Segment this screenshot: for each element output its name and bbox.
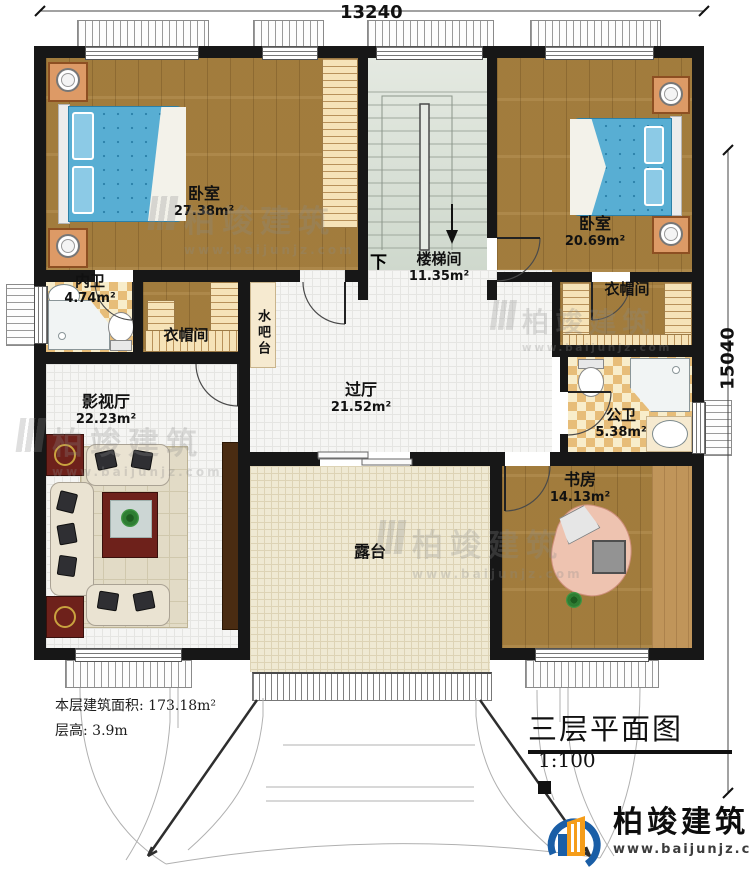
floor-info: 本层建筑面积: 173.18m² 层高: 3.9m xyxy=(55,694,216,743)
room-label-inner-bathroom: 内卫 4.74m² xyxy=(52,272,128,307)
room-label-study: 书房 14.13m² xyxy=(536,470,624,506)
room-label-cloakroom-right: 衣帽间 xyxy=(586,280,668,299)
stair-outline xyxy=(382,96,452,250)
brand-logo-name: 柏竣建筑 xyxy=(613,808,750,838)
room-label-hall: 过厅 21.52m² xyxy=(316,380,406,416)
stair-down-arrow xyxy=(446,204,458,244)
stair-down-label: 下 xyxy=(370,248,387,273)
brand-logo-url: www.baijunjz.com xyxy=(613,842,750,857)
terrace-sliding-door xyxy=(318,452,412,465)
room-label-bedroom-right: 卧室 20.69m² xyxy=(540,214,650,250)
canopy-node xyxy=(538,781,551,794)
floor-height-text: 层高: 3.9m xyxy=(55,719,216,744)
room-label-media-room: 影视厅 22.23m² xyxy=(56,392,156,428)
room-label-stairwell: 楼梯间 11.35m² xyxy=(402,250,476,285)
room-label-cloakroom-left: 衣帽间 xyxy=(140,326,232,345)
room-label-public-bathroom: 公卫 5.38m² xyxy=(584,406,658,441)
drawing-title: 三层平面图 xyxy=(528,712,683,746)
title-underline xyxy=(528,750,732,754)
dimension-right: 15040 xyxy=(718,327,739,391)
floor-area-text: 本层建筑面积: 173.18m² xyxy=(55,694,216,719)
floor-plan-canvas: 13240 15040 卧室 27.38m² 内卫 4.74m² 衣帽间 水吧台… xyxy=(0,0,750,883)
room-label-bedroom-left: 卧室 27.38m² xyxy=(146,184,262,220)
dimension-top: 13240 xyxy=(340,2,403,23)
stair-handrail xyxy=(420,104,429,250)
brand-logo-icon xyxy=(543,808,603,874)
room-label-water-bar: 水吧台 xyxy=(252,300,272,366)
room-label-terrace: 露台 xyxy=(325,542,415,562)
brand-logo: 柏竣建筑 www.baijunjz.com xyxy=(543,808,750,874)
drawing-title-block: 三层平面图 1:100 xyxy=(528,706,738,762)
